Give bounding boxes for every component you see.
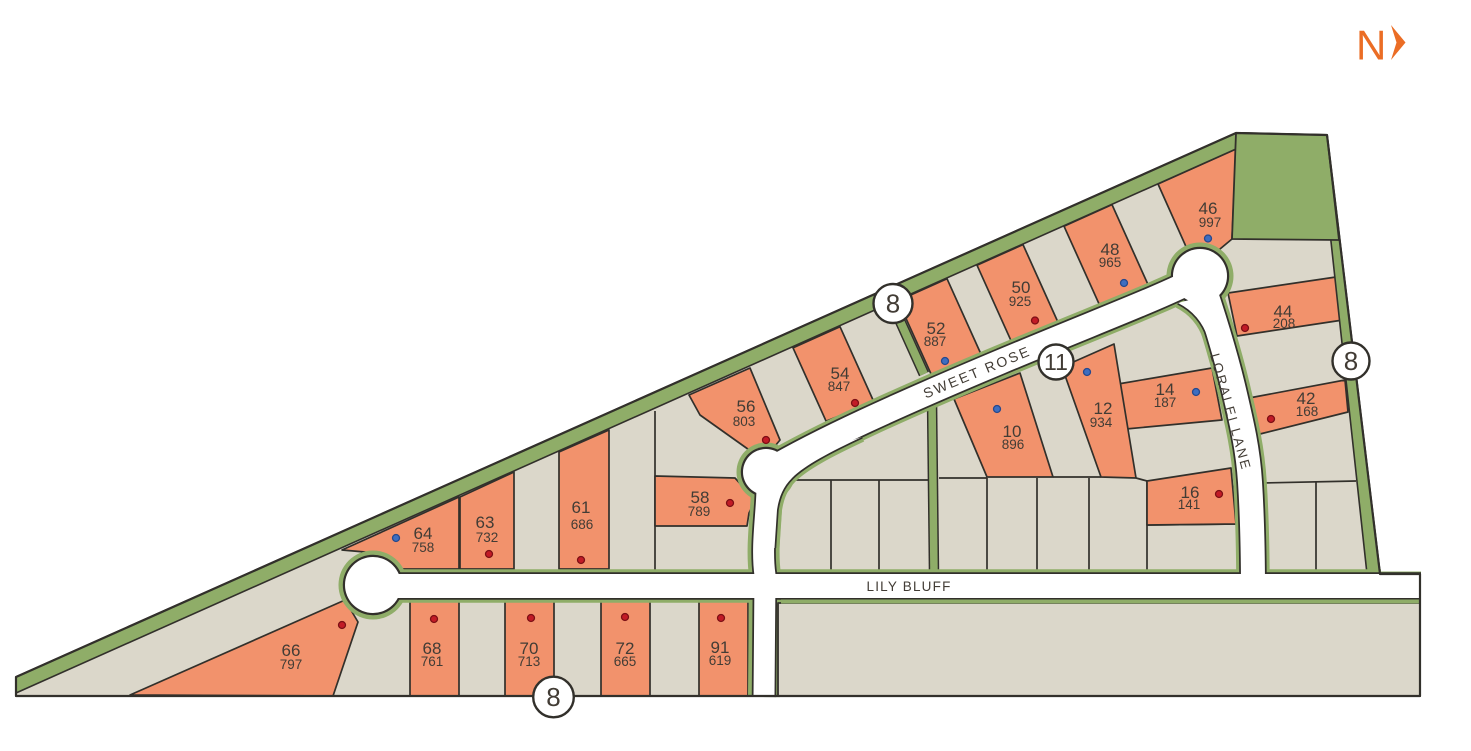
svg-text:761: 761 [421, 654, 444, 669]
svg-text:8: 8 [546, 682, 560, 712]
svg-text:803: 803 [733, 414, 756, 429]
svg-text:934: 934 [1090, 415, 1113, 430]
svg-text:925: 925 [1009, 294, 1032, 309]
svg-text:713: 713 [518, 654, 541, 669]
svg-text:LILY BLUFF: LILY BLUFF [866, 579, 951, 594]
svg-text:619: 619 [709, 653, 732, 668]
svg-text:887: 887 [924, 334, 947, 349]
svg-text:997: 997 [1199, 215, 1222, 230]
svg-text:896: 896 [1002, 437, 1025, 452]
svg-text:797: 797 [280, 657, 303, 672]
svg-text:758: 758 [412, 540, 435, 555]
svg-text:208: 208 [1273, 316, 1296, 331]
svg-text:965: 965 [1099, 255, 1122, 270]
svg-text:686: 686 [571, 517, 594, 532]
svg-text:N: N [1356, 22, 1386, 69]
svg-text:8: 8 [886, 289, 900, 319]
svg-text:187: 187 [1154, 395, 1177, 410]
svg-text:789: 789 [688, 504, 711, 519]
svg-text:141: 141 [1178, 497, 1201, 512]
svg-text:847: 847 [828, 379, 851, 394]
svg-text:665: 665 [614, 654, 637, 669]
svg-text:168: 168 [1296, 404, 1319, 419]
svg-text:8: 8 [1344, 346, 1358, 376]
svg-text:11: 11 [1044, 349, 1068, 375]
svg-text:61: 61 [572, 498, 591, 517]
svg-text:732: 732 [476, 530, 499, 545]
